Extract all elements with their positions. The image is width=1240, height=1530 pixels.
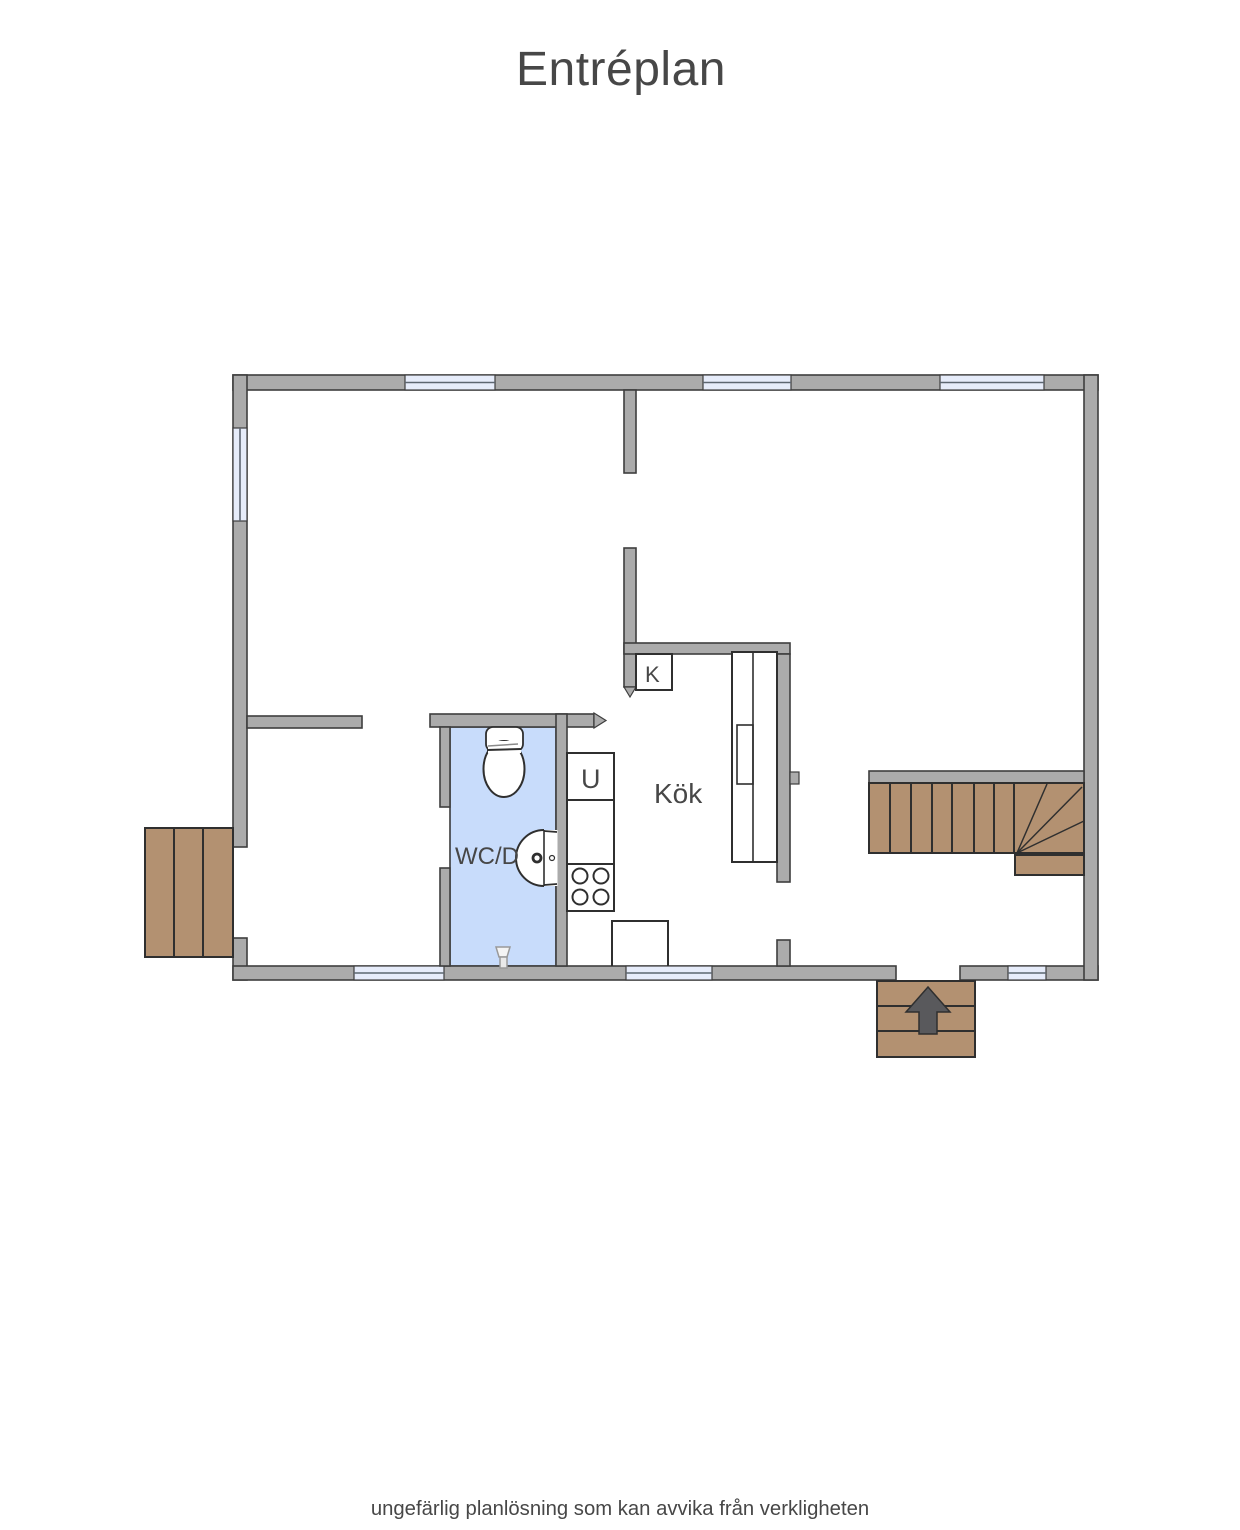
svg-text:Kök: Kök (654, 778, 703, 809)
svg-text:U: U (581, 764, 601, 794)
svg-text:Entréplan: Entréplan (516, 43, 726, 96)
svg-text:WC/D: WC/D (455, 843, 519, 870)
svg-text:ungefärlig planlösning som kan: ungefärlig planlösning som kan avvika fr… (371, 1498, 869, 1520)
svg-text:K: K (645, 662, 660, 687)
